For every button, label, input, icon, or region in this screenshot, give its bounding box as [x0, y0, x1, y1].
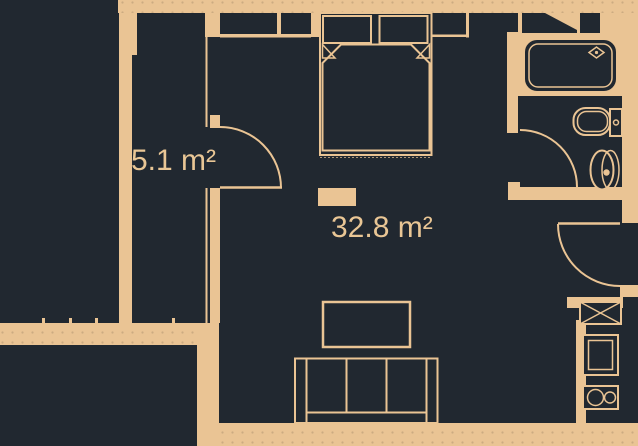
wall-spur — [318, 188, 356, 206]
coffee-table — [323, 302, 410, 347]
bathroom-wall-left — [507, 32, 518, 133]
bathtub-outer — [524, 39, 617, 92]
cooktop — [583, 386, 618, 409]
duct-niche — [580, 13, 600, 33]
bathroom-wall-south — [508, 187, 638, 200]
floor-plan: 5.1 m² 32.8 m² — [0, 0, 638, 446]
sofa — [295, 359, 438, 424]
wall-tick-marks — [42, 318, 175, 323]
kitchen-cabinet-icon — [580, 302, 621, 324]
door-kitchen-nook — [558, 224, 620, 287]
room-area-label-small: 5.1 m² — [131, 146, 216, 176]
wall-right — [622, 13, 638, 223]
bed — [320, 13, 432, 158]
bed-head-pillar — [311, 13, 320, 37]
niche-divider — [466, 13, 469, 38]
washbasin — [591, 151, 620, 190]
wall-smallroom-mid — [210, 115, 220, 128]
toilet-tank — [610, 109, 622, 136]
bed-frame — [320, 13, 432, 155]
kitchen-door-jamb — [620, 285, 638, 297]
bathtub — [524, 39, 617, 92]
kitchen-appliances — [580, 302, 621, 409]
door-small-room — [220, 127, 282, 188]
floor-plan-drawing — [0, 0, 638, 446]
niche-ledge-right — [432, 35, 466, 38]
toilet — [574, 108, 623, 136]
room-area-label-main: 32.8 m² — [331, 213, 433, 243]
niche-pillar — [277, 13, 281, 34]
door-bathroom — [520, 130, 577, 187]
bathroom-wall-south-step — [508, 182, 520, 187]
kitchen-sink — [583, 335, 618, 375]
partition-line-upper — [206, 37, 208, 127]
wall-smallroom-bottom — [210, 188, 220, 323]
washbasin-drain — [603, 169, 609, 175]
wall-column — [197, 323, 219, 446]
wall-smallroom-top — [205, 10, 220, 37]
niche-ledge-left — [220, 34, 311, 38]
partition-line-lower — [206, 188, 208, 323]
